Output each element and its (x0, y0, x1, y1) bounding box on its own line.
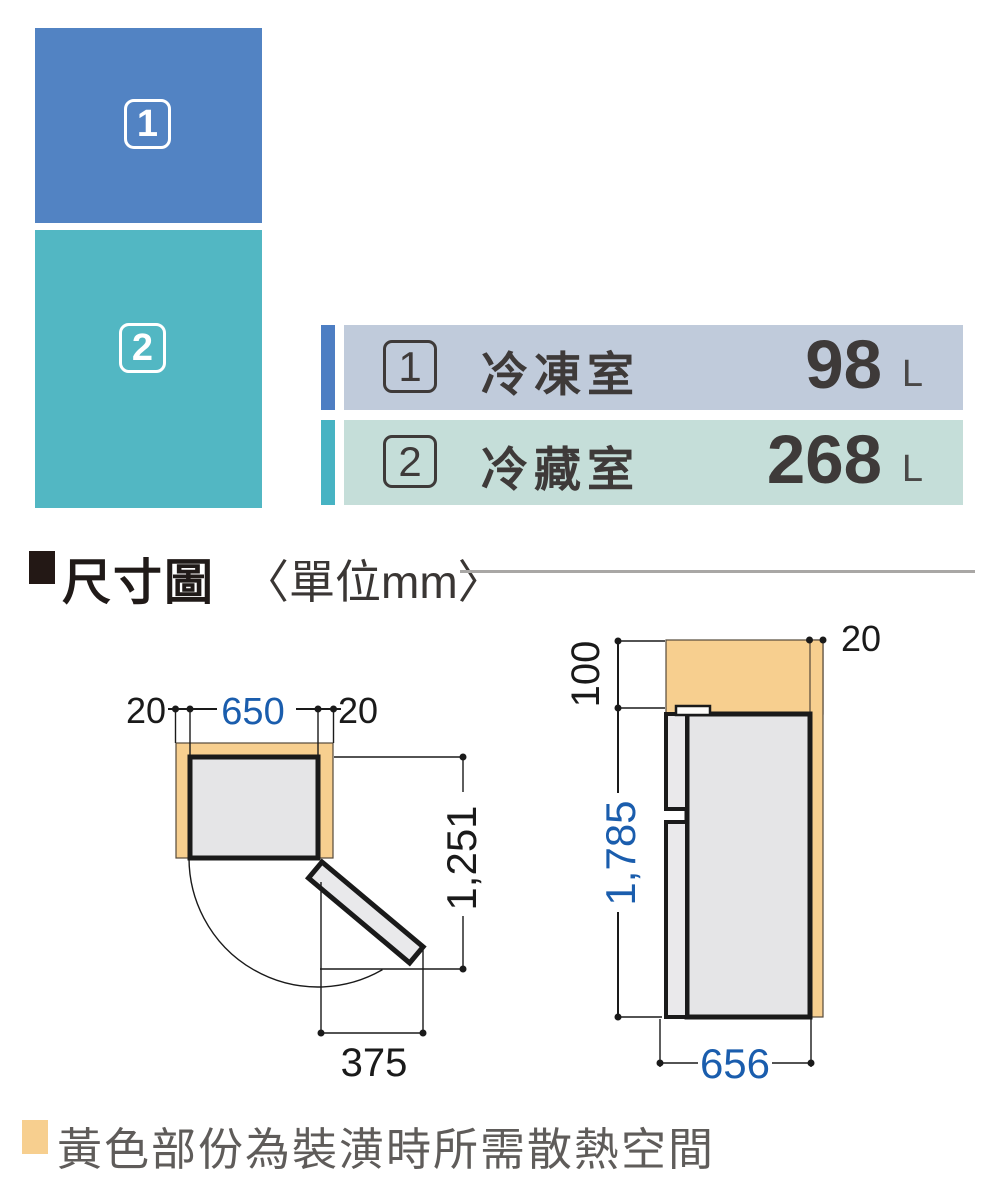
freezer-number-badge: 1 (124, 99, 171, 149)
freezer-number: 1 (137, 103, 158, 146)
freezer-capacity-value: 98 (805, 330, 882, 399)
footnote-text: 黃色部份為裝潢時所需散熱空間 (57, 1113, 715, 1178)
dim-right-clearance: 20 (338, 690, 378, 731)
dim-height: 1,785 (597, 800, 644, 905)
footnote-yellow-square (22, 1120, 48, 1154)
fridge-accent-bar (321, 420, 335, 505)
door-hinge (676, 706, 710, 715)
freezer-capacity-row: 1 冷凍室 98 L (321, 325, 963, 410)
dim-width: 650 (221, 691, 284, 733)
dim-top-clearance: 100 (564, 641, 608, 708)
top-clearance-dim-lines (618, 641, 665, 708)
dim-left-clearance: 20 (126, 690, 166, 731)
height-dim-dot (615, 1014, 622, 1021)
side-view-top-clearance (666, 640, 823, 714)
fridge-capacity-value: 268 (767, 425, 882, 494)
fridge-number-badge: 2 (119, 323, 166, 373)
dimension-diagrams: 20 650 20 1,251 (0, 600, 1000, 1100)
freezer-accent-bar (321, 325, 335, 410)
dim-rear-clearance: 20 (841, 618, 881, 659)
freezer-legend-badge: 1 (383, 340, 437, 393)
fridge-capacity-bar: 2 冷藏室 268 L (344, 420, 963, 505)
freezer-capacity-bar: 1 冷凍室 98 L (344, 325, 963, 410)
fridge-body-side-view (687, 714, 810, 1017)
fridge-capacity-unit: L (902, 450, 923, 488)
fridge-label: 冷藏室 (481, 431, 640, 500)
fridge-capacity-row: 2 冷藏室 268 L (321, 420, 963, 505)
freezer-label: 冷凍室 (481, 336, 640, 405)
section-bullet-square (29, 551, 55, 584)
dim-side-depth: 656 (700, 1040, 770, 1087)
top-view-drawing: 20 650 20 1,251 (126, 690, 485, 1085)
fridge-compartment-block: 2 (35, 230, 262, 508)
side-view-drawing: 100 1,785 20 (564, 618, 881, 1087)
fridge-door-side-view (666, 822, 687, 1017)
freezer-legend-number: 1 (398, 343, 421, 391)
fridge-body-top-view (190, 757, 318, 858)
fridge-legend-badge: 2 (383, 435, 437, 488)
section-rule-line (460, 570, 975, 573)
door-open-top-view (309, 862, 424, 963)
dim-depth-door-open: 1,251 (438, 805, 485, 910)
dim-door-swing: 375 (341, 1041, 408, 1085)
freezer-compartment-block: 1 (35, 28, 262, 223)
freezer-door-side-view (666, 714, 687, 809)
freezer-capacity-unit: L (902, 355, 923, 393)
fridge-legend-number: 2 (398, 438, 421, 486)
fridge-number: 2 (132, 327, 153, 370)
door-swing-arc (189, 858, 383, 987)
spec-sheet: 1 2 1 冷凍室 98 L 2 冷藏室 268 L 尺寸圖 〈單 (0, 0, 1000, 1202)
